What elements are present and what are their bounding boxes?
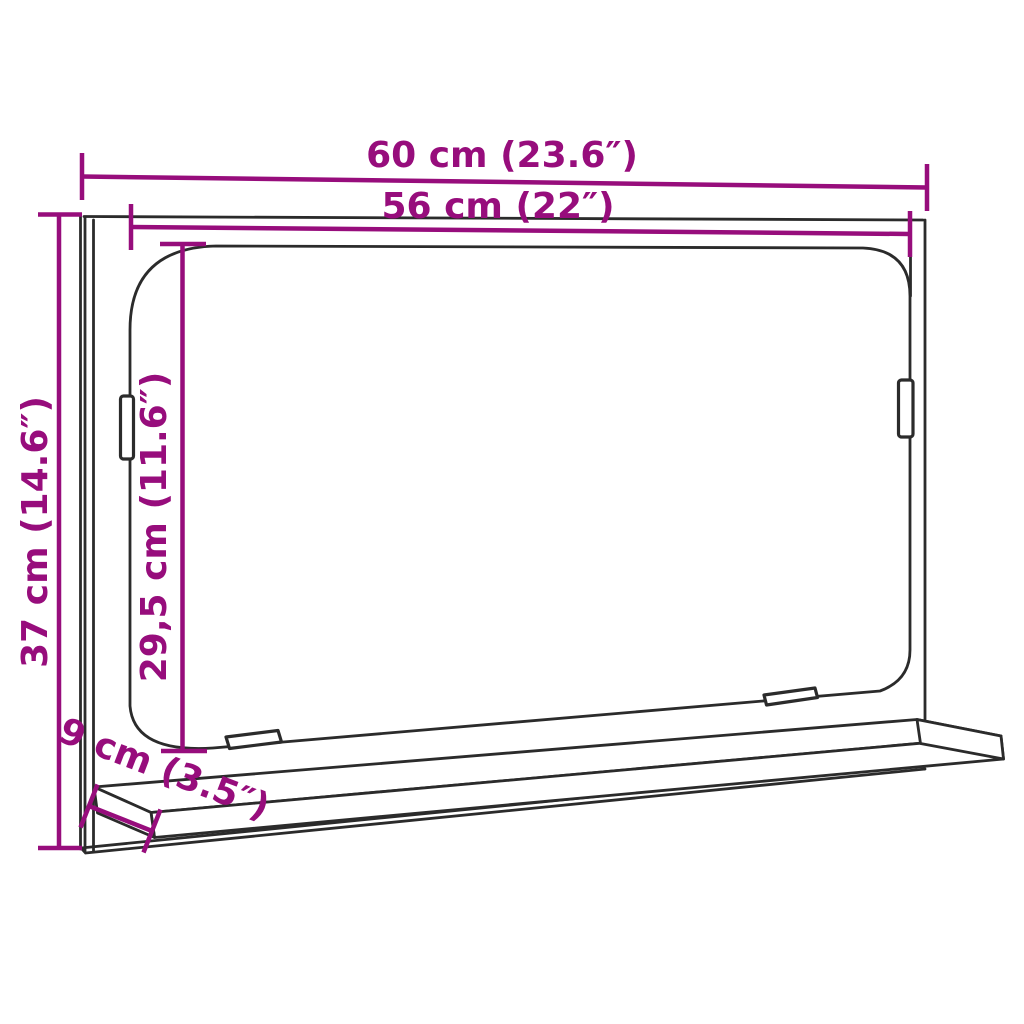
outer-height-label: 37 cm (14.6″)	[15, 396, 56, 668]
clip-bottom-right	[764, 688, 818, 705]
mirror-glass	[130, 246, 910, 748]
mirror-width-label: 56 cm (22″)	[381, 186, 614, 227]
clip-right	[899, 380, 914, 437]
clip-bottom-left	[226, 731, 282, 749]
dimension-mirror-height: 29,5 cm (11.6″)	[134, 244, 207, 751]
mirror-height-label: 29,5 cm (11.6″)	[134, 372, 175, 683]
clip-left	[121, 396, 134, 459]
mirror-dimension-drawing: 60 cm (23.6″) 56 cm (22″) 37 cm (14.6″)	[0, 0, 1024, 1024]
mounting-clips	[121, 380, 914, 749]
mirror-width-line	[131, 227, 910, 234]
outer-width-label: 60 cm (23.6″)	[366, 135, 638, 176]
dimension-diagram: 60 cm (23.6″) 56 cm (22″) 37 cm (14.6″)	[0, 0, 1024, 1024]
